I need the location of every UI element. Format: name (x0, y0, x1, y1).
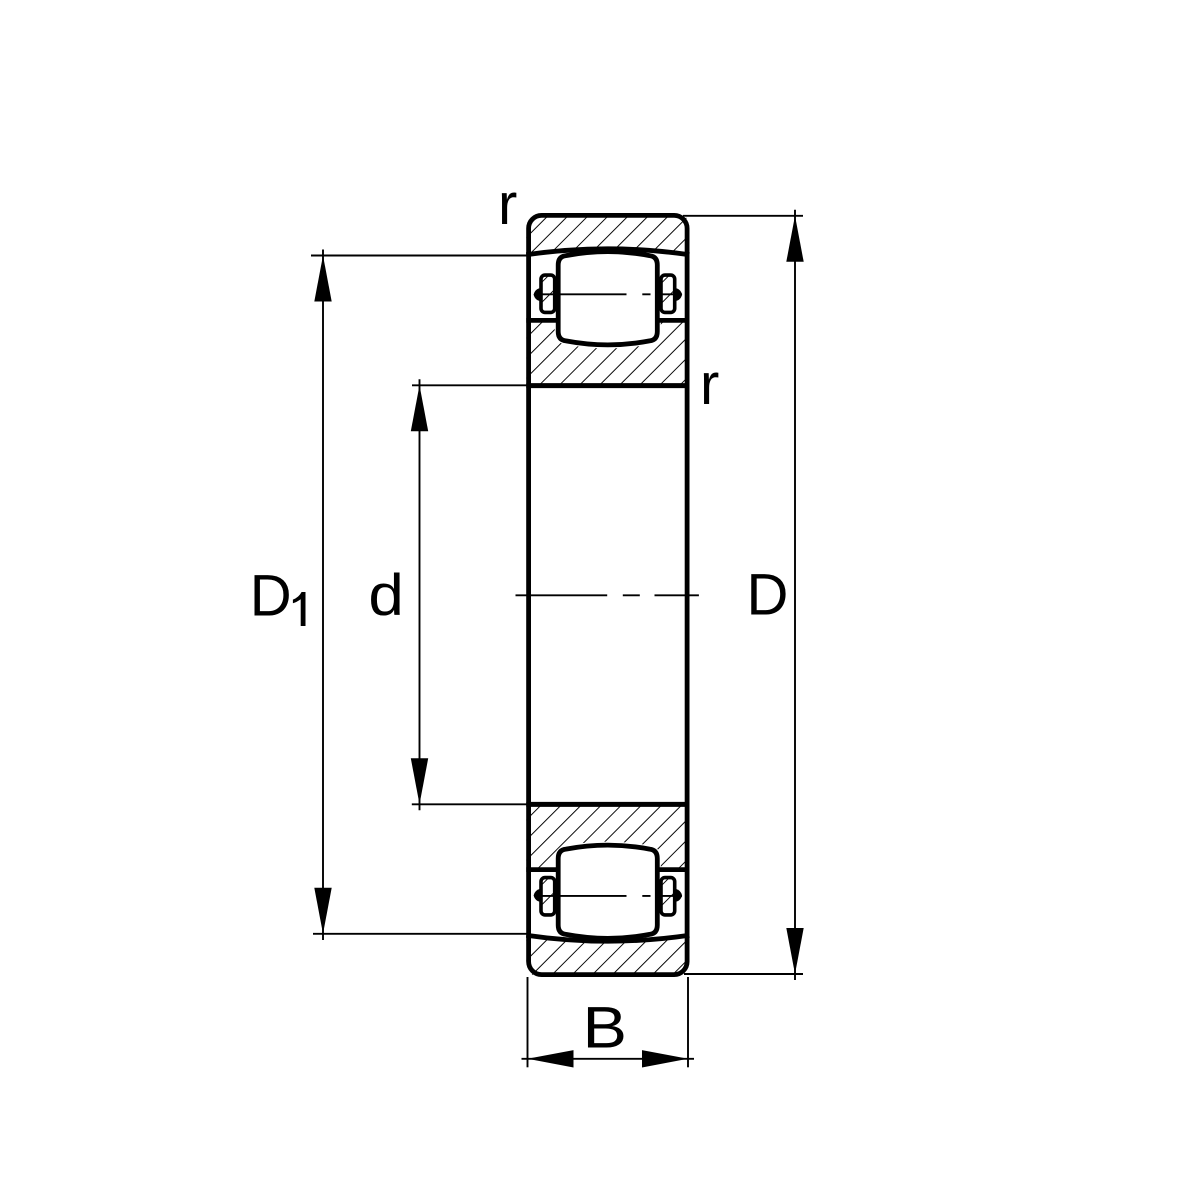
svg-text:d: d (368, 563, 403, 628)
svg-text:D: D (250, 564, 292, 629)
svg-text:r: r (498, 172, 517, 237)
svg-text:B: B (583, 995, 627, 1060)
svg-text:r: r (700, 352, 719, 417)
svg-text:D: D (747, 563, 789, 628)
